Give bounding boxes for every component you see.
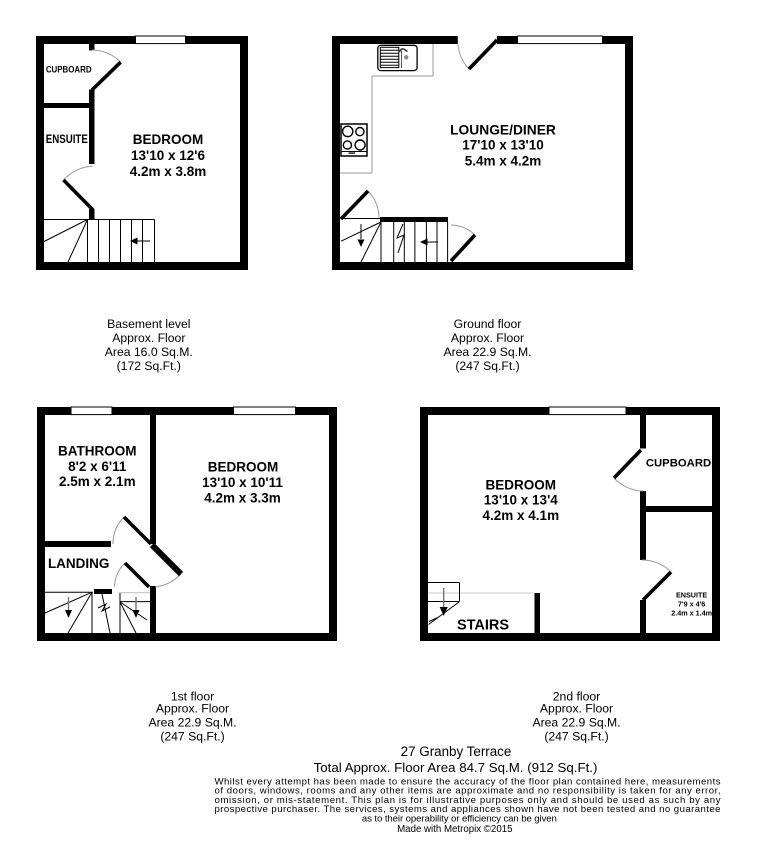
svg-text:Basement level: Basement level [107,317,190,331]
svg-text:Approx. Floor: Approx. Floor [156,701,229,715]
svg-text:4.2m x 4.1m: 4.2m x 4.1m [483,508,560,523]
svg-text:27 Granby Terrace: 27 Granby Terrace [401,744,512,759]
svg-text:LANDING: LANDING [48,556,110,571]
svg-text:CUPBOARD: CUPBOARD [46,65,92,75]
svg-text:(247 Sq.Ft.): (247 Sq.Ft.) [160,729,224,743]
svg-text:8'2 x 6'11: 8'2 x 6'11 [68,459,127,474]
svg-text:5.4m x 4.2m: 5.4m x 4.2m [465,154,542,169]
svg-text:CUPBOARD: CUPBOARD [646,458,711,470]
svg-text:2.4m x 1.4m: 2.4m x 1.4m [671,609,712,618]
svg-text:13'10 x 12'6: 13'10 x 12'6 [131,148,205,163]
svg-text:ENSUITE: ENSUITE [676,591,707,600]
svg-text:(172 Sq.Ft.): (172 Sq.Ft.) [117,359,181,373]
svg-text:(247 Sq.Ft.): (247 Sq.Ft.) [455,359,519,373]
svg-text:2.5m x 2.1m: 2.5m x 2.1m [59,474,136,489]
svg-text:BATHROOM: BATHROOM [58,443,137,458]
svg-text:LOUNGE/DINER: LOUNGE/DINER [450,122,556,137]
svg-text:STAIRS: STAIRS [457,618,509,634]
svg-text:Area 16.0 Sq.M.: Area 16.0 Sq.M. [105,345,193,359]
svg-text:Ground floor: Ground floor [454,317,522,331]
svg-text:ENSUITE: ENSUITE [46,132,88,146]
svg-text:Approx. Floor: Approx. Floor [540,701,613,715]
svg-text:Total Approx. Floor Area 84.7: Total Approx. Floor Area 84.7 Sq.M. (912… [314,760,598,775]
svg-text:17'10 x 13'10: 17'10 x 13'10 [462,138,544,153]
svg-text:BEDROOM: BEDROOM [486,477,557,492]
svg-text:Made with Metropix ©2015: Made with Metropix ©2015 [397,824,512,835]
svg-text:4.2m x 3.3m: 4.2m x 3.3m [204,490,281,505]
svg-text:Approx. Floor: Approx. Floor [451,331,524,345]
svg-text:Area 22.9 Sq.M.: Area 22.9 Sq.M. [148,716,236,730]
svg-text:4.2m x 3.8m: 4.2m x 3.8m [130,164,207,179]
svg-text:(247 Sq.Ft.): (247 Sq.Ft.) [544,729,608,743]
svg-text:as to their operability or eff: as to their operability or efficiency ca… [362,814,557,825]
svg-text:BEDROOM: BEDROOM [208,459,279,474]
svg-text:13'10 x 13'4: 13'10 x 13'4 [484,493,558,508]
svg-text:BEDROOM: BEDROOM [133,132,204,147]
svg-text:7'9 x 4'6: 7'9 x 4'6 [678,600,705,609]
svg-text:13'10 x 10'11: 13'10 x 10'11 [202,475,283,490]
svg-text:Approx. Floor: Approx. Floor [112,331,185,345]
svg-text:Area 22.9 Sq.M.: Area 22.9 Sq.M. [443,345,531,359]
svg-text:Area 22.9 Sq.M.: Area 22.9 Sq.M. [532,716,620,730]
